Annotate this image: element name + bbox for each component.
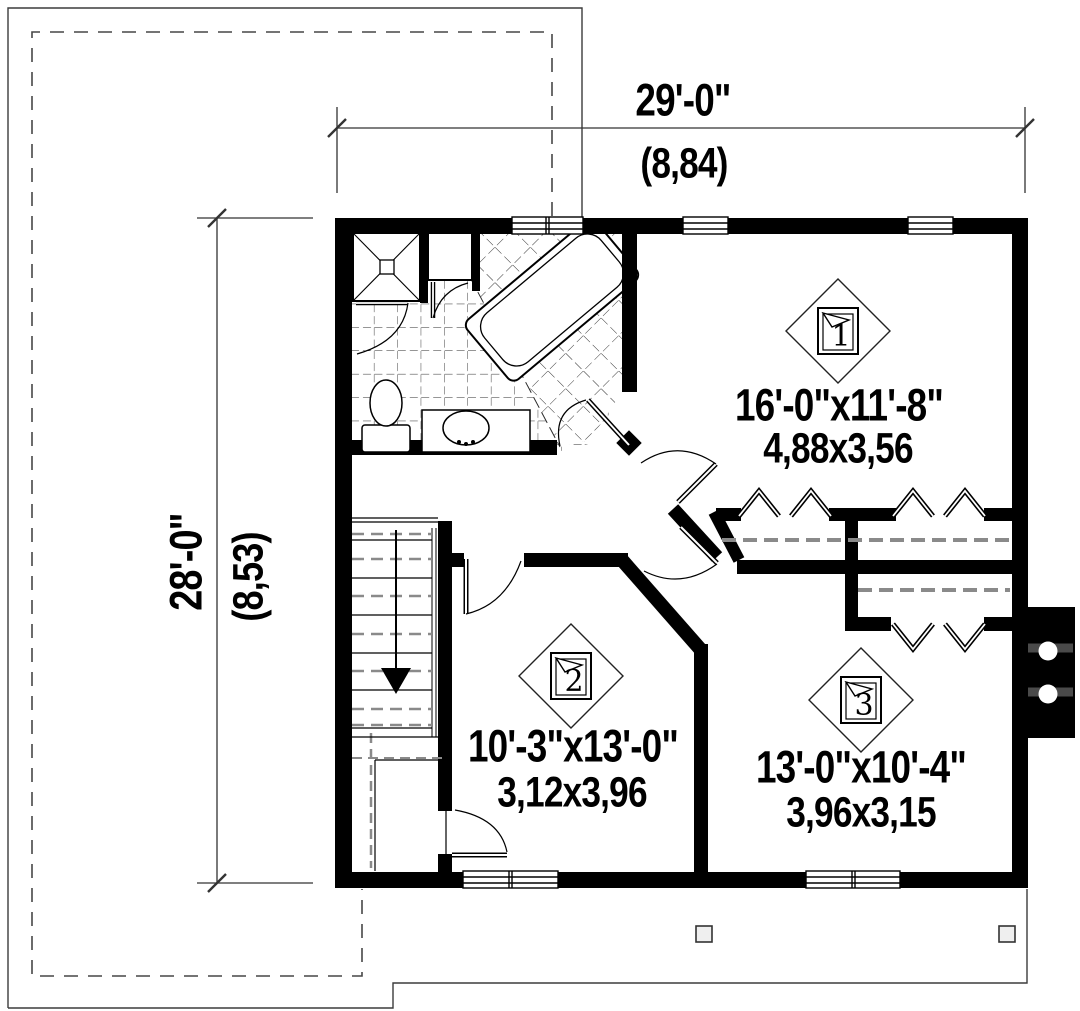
dimension-left-imperial: 28'-0": [164, 513, 209, 611]
window-bedroom3-double: [806, 871, 900, 888]
room1-marker-number: 1: [831, 322, 850, 352]
dimension-top-imperial: 29'-0": [635, 78, 730, 123]
closet1-front-wall-c: [984, 508, 1013, 521]
stairs: [352, 518, 438, 737]
closet2-door-jamb: [438, 854, 452, 872]
bedroom2-north-wall: [524, 553, 628, 567]
floor-plan-drawing: [0, 0, 1080, 1011]
bedroom2-diagonal-wall: [622, 560, 701, 650]
room3-size-imperial: 13'-0"x10'-4": [756, 745, 966, 790]
linen-closet: [428, 233, 472, 280]
porch-posts: [696, 926, 1015, 942]
room1-size-imperial: 16'-0"x11'-8": [735, 383, 943, 428]
linen-east-wall: [472, 233, 480, 291]
room2-marker-number: 2: [564, 667, 583, 697]
room1-size-metric: 4,88x3,56: [763, 428, 912, 471]
window-bedroom2-double: [463, 871, 558, 888]
room2-size-metric: 3,12x3,96: [497, 772, 646, 815]
bedroom1-door: [641, 451, 716, 502]
room3-marker-number: 3: [854, 691, 873, 721]
closet-middle-wall: [737, 560, 1013, 574]
shower-east-wall: [420, 233, 428, 303]
bedroom2-door: [466, 559, 521, 614]
dimension-left-metric: (8,53): [228, 532, 271, 621]
closet3-front-wall-a: [845, 617, 891, 631]
chimney: [1012, 607, 1075, 738]
closet3-front-wall-b: [984, 617, 1013, 631]
room2-size-imperial: 10'-3"x13'-0": [468, 724, 678, 769]
roof-outline-dashed: [32, 32, 552, 976]
vanity-sink: [422, 410, 530, 452]
closet-divider-wall: [845, 508, 858, 631]
floor-plan: 29'-0" (8,84) 28'-0" (8,53) 16'-0"x11'-8…: [0, 0, 1080, 1011]
closet2-inner-lines: [375, 760, 446, 871]
bedroom2-bedroom3-wall: [694, 644, 708, 872]
window-bedroom1-right: [908, 217, 953, 234]
closet1-front-wall-b: [829, 508, 896, 521]
window-bedroom1-left: [683, 217, 728, 234]
bedroom2-closet-door: [452, 810, 507, 855]
room3-size-metric: 3,96x3,15: [786, 792, 935, 835]
window-bath-double: [512, 217, 583, 234]
bedroom1-west-wall: [622, 234, 637, 392]
stair-east-wall: [438, 521, 452, 811]
dimension-top-metric: (8,84): [640, 143, 727, 186]
shower: [353, 233, 420, 301]
stairs-down-arrow: [381, 530, 411, 694]
